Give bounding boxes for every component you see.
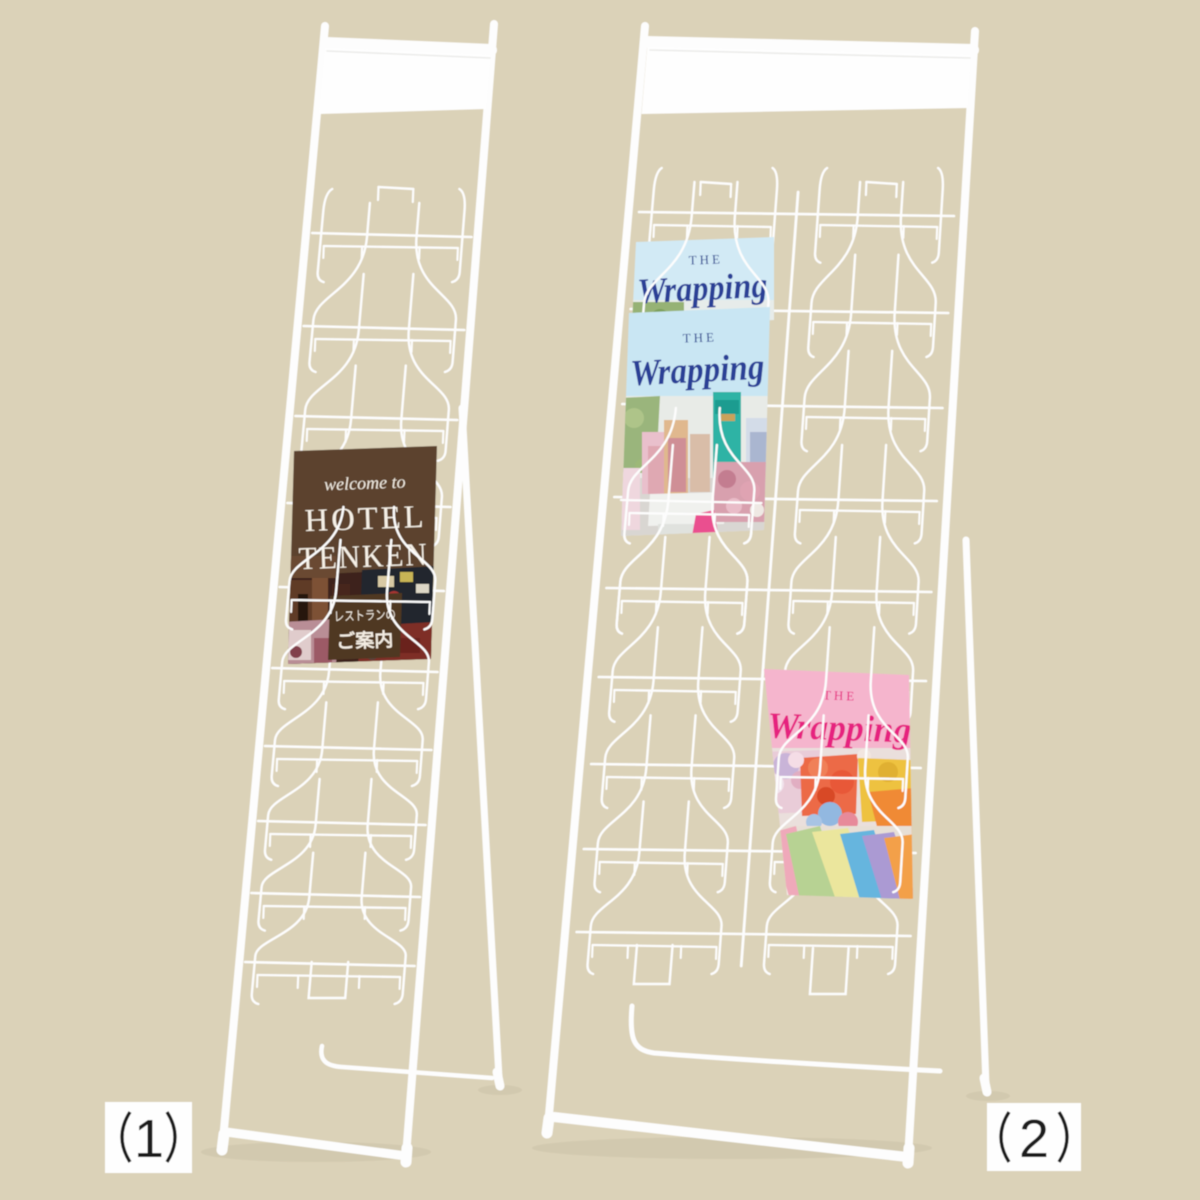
svg-text:2: 2 (1019, 1109, 1049, 1169)
svg-text:1: 1 (134, 1109, 164, 1169)
svg-text:THE: THE (688, 251, 723, 267)
svg-text:Wrapping: Wrapping (636, 265, 768, 312)
svg-text:Wrapping: Wrapping (767, 706, 912, 752)
svg-text:THE: THE (823, 687, 858, 703)
svg-text:THE: THE (682, 329, 717, 345)
svg-text:HOTEL: HOTEL (304, 498, 427, 538)
svg-text:ご案内: ご案内 (336, 628, 394, 653)
svg-text:レストランの: レストランの (334, 607, 396, 624)
svg-text:Wrapping: Wrapping (629, 347, 765, 395)
svg-text:TENKEN: TENKEN (298, 536, 429, 577)
svg-text:welcome to: welcome to (324, 472, 406, 495)
